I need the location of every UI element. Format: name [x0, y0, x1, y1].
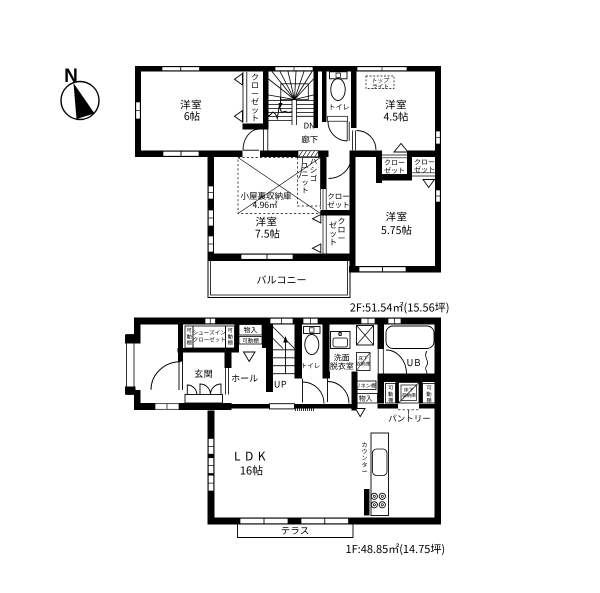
svg-text:4.96㎡: 4.96㎡ [252, 199, 278, 211]
svg-text:ゴ: ゴ [310, 173, 318, 184]
svg-text:バルコニー: バルコニー [257, 271, 307, 286]
svg-text:テラス: テラス [281, 523, 310, 537]
svg-text:5.75帖: 5.75帖 [381, 223, 412, 238]
svg-text:ゼット: ゼット [327, 200, 350, 211]
svg-text:4.5帖: 4.5帖 [383, 110, 409, 125]
svg-text:玄関: 玄関 [194, 367, 213, 380]
svg-text:ホール: ホール [231, 372, 258, 385]
svg-text:収納庫: 収納庫 [401, 392, 416, 399]
svg-text:廊下: 廊下 [301, 134, 319, 146]
svg-text:16帖: 16帖 [240, 463, 263, 479]
svg-text:N: N [64, 66, 78, 87]
svg-text:脱衣室: 脱衣室 [330, 361, 354, 372]
svg-text:可動棚: 可動棚 [242, 336, 259, 344]
svg-text:収納庫: 収納庫 [356, 361, 371, 368]
svg-text:物入: 物入 [359, 394, 373, 404]
svg-text:ゼット: ゼット [384, 166, 405, 176]
svg-text:トイレ: トイレ [329, 102, 350, 112]
svg-text:ト: ト [301, 185, 309, 196]
svg-text:7.5帖: 7.5帖 [255, 226, 281, 241]
svg-text:パントリー: パントリー [388, 413, 431, 425]
svg-text:ゼット: ゼット [414, 165, 435, 175]
svg-text:リネン棚: リネン棚 [355, 382, 376, 389]
svg-text:6帖: 6帖 [184, 109, 201, 124]
svg-text:棚: 棚 [228, 340, 233, 347]
svg-text:ト: ト [329, 237, 337, 248]
svg-text:棚: 棚 [388, 397, 393, 404]
svg-text:棚: 棚 [187, 340, 192, 347]
svg-text:DN: DN [304, 120, 315, 131]
svg-text:1F:48.85㎡(14.75坪): 1F:48.85㎡(14.75坪) [346, 541, 446, 557]
svg-text:2F:51.54㎡(15.56坪): 2F:51.54㎡(15.56坪) [350, 299, 450, 315]
svg-text:UP: UP [274, 377, 287, 390]
svg-text:クローゼット: クローゼット [193, 336, 226, 344]
svg-text:ー: ー [338, 233, 346, 244]
svg-text:ライト: ライト [371, 81, 390, 90]
svg-text:棚: 棚 [426, 397, 431, 404]
svg-text:物入: 物入 [244, 326, 258, 336]
svg-text:トイレ: トイレ [301, 360, 321, 370]
svg-text:ト: ト [251, 113, 259, 124]
svg-text:UB: UB [406, 355, 421, 369]
svg-text:ー: ー [361, 466, 367, 475]
